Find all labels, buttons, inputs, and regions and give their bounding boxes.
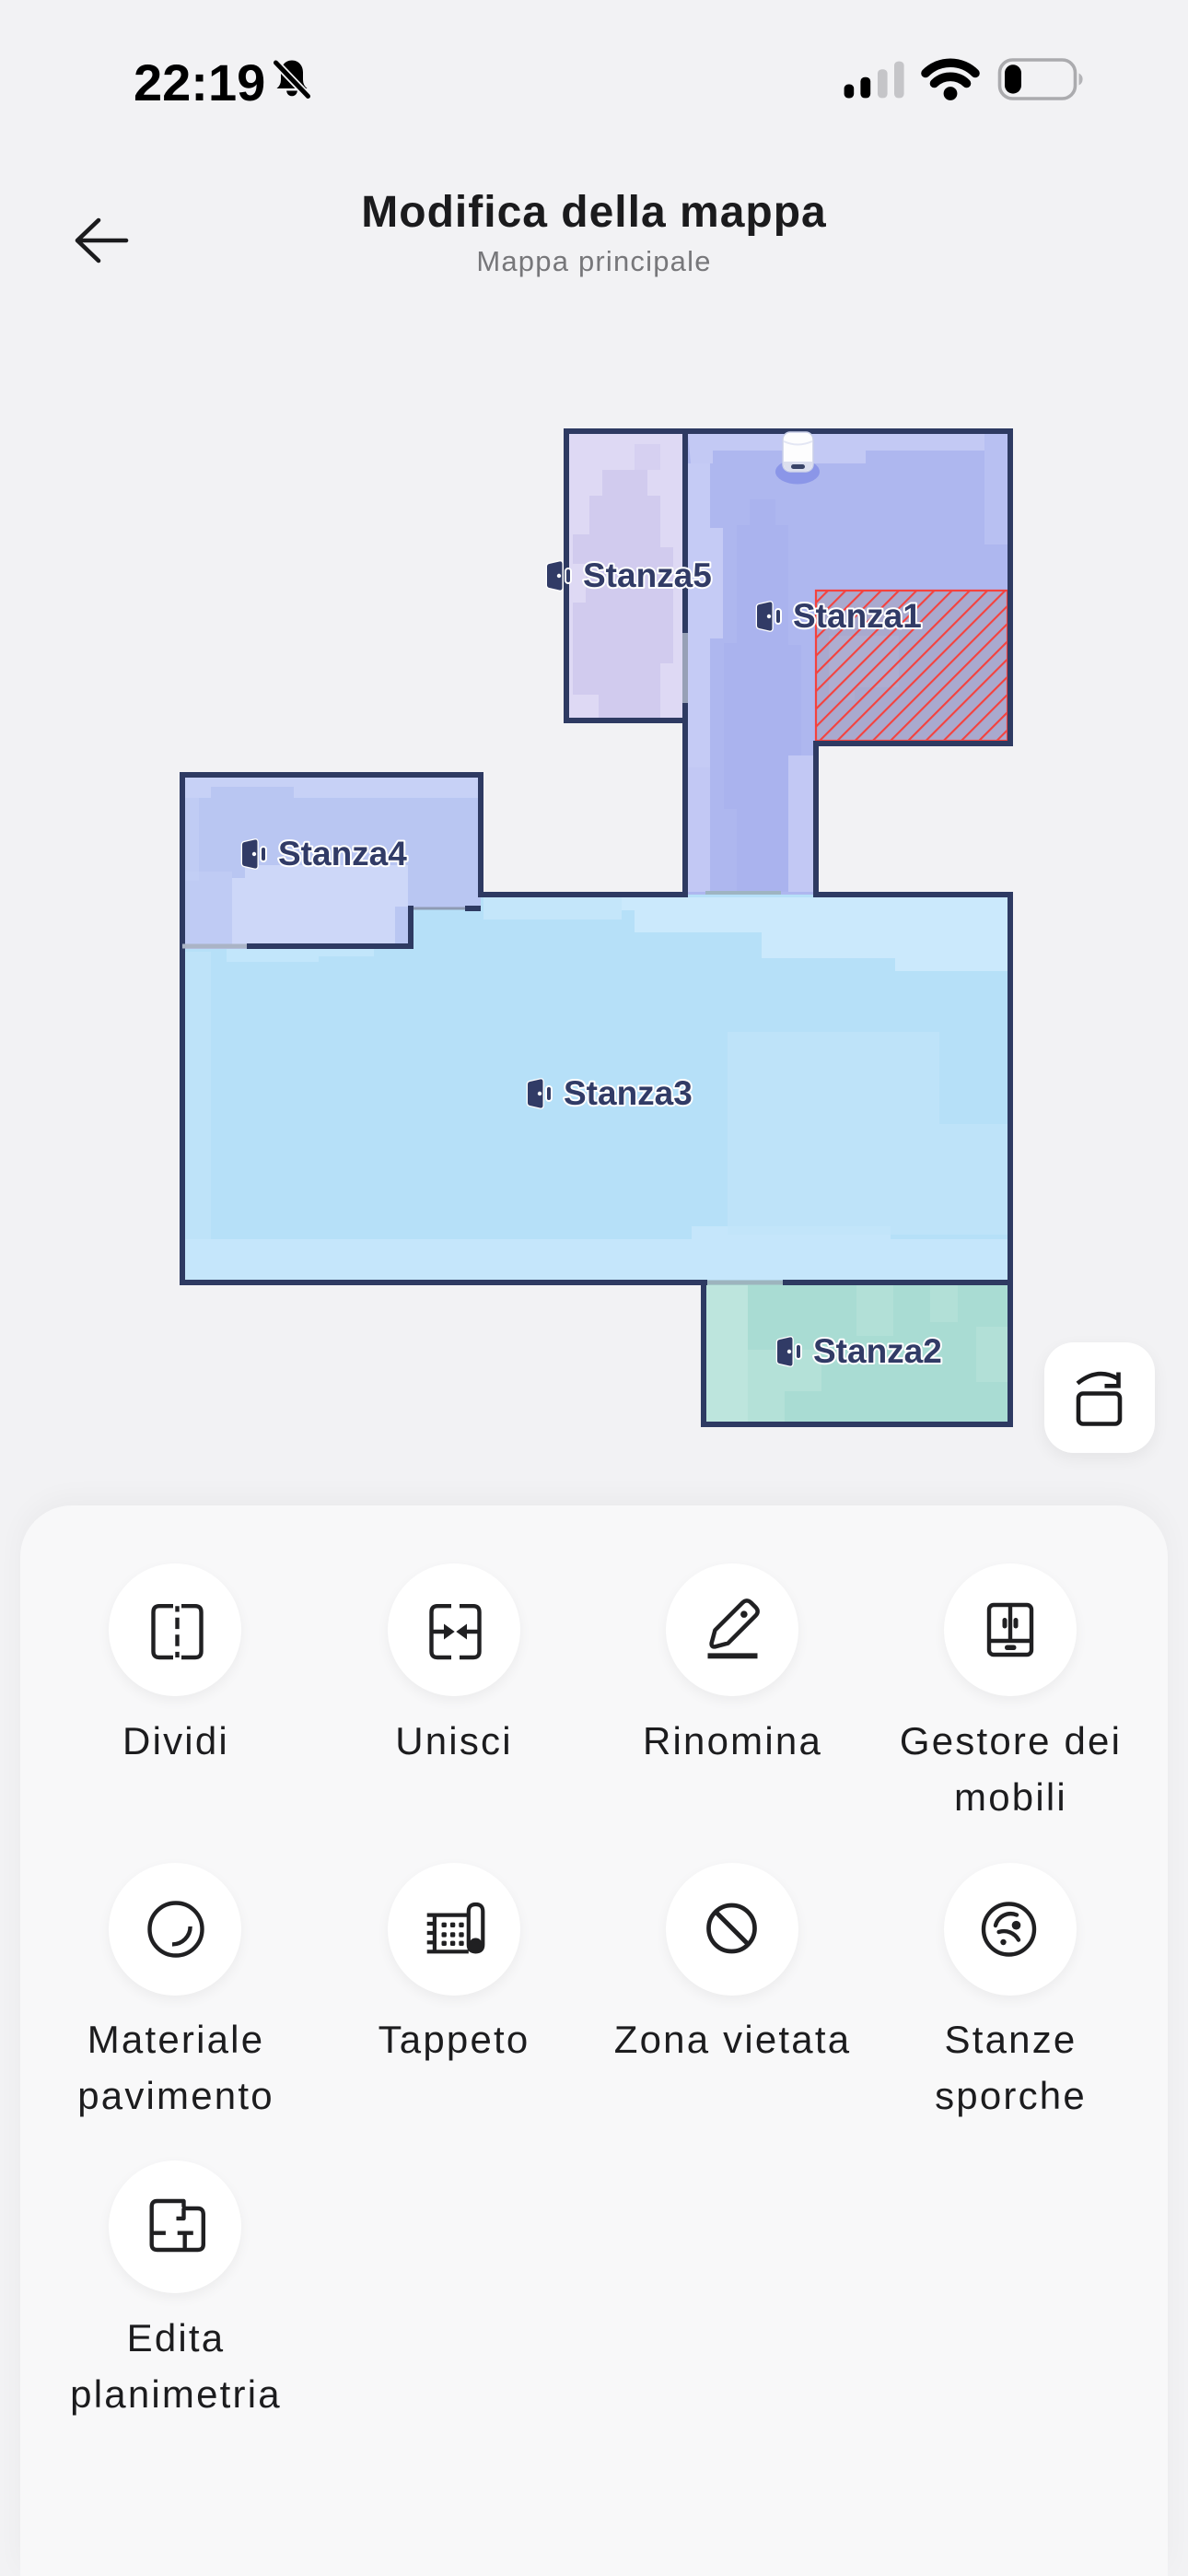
svg-text:Stanza2: Stanza2 [813,1332,942,1370]
svg-text:Stanza1: Stanza1 [793,597,922,635]
svg-text:Stanza3: Stanza3 [564,1074,693,1112]
svg-text:Stanza5: Stanza5 [583,556,712,594]
svg-text:Stanza4: Stanza4 [278,835,407,872]
